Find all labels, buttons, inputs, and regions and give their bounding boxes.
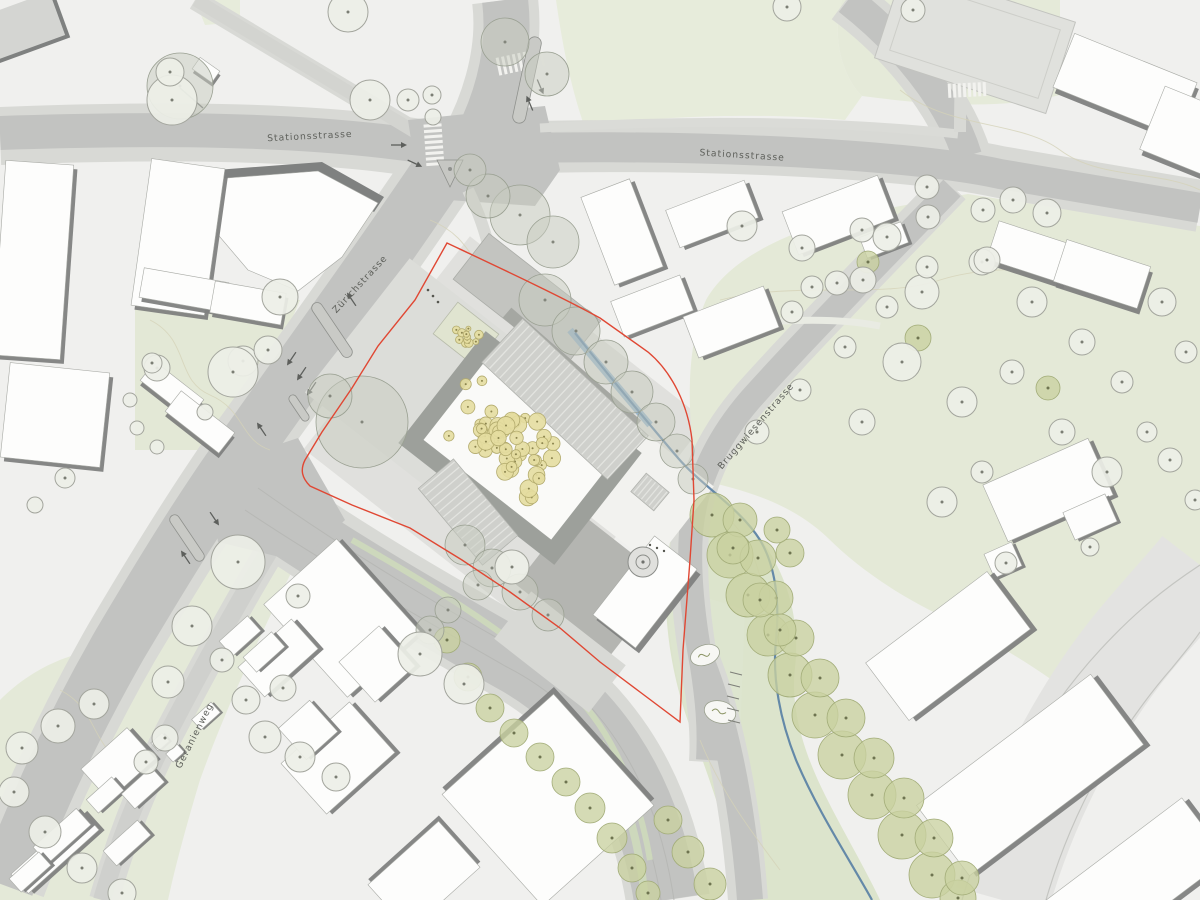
- lawn-top-center: [556, 0, 862, 128]
- site-plan-map: Stationsstrasse Stationsstrasse Zürichst…: [0, 0, 1200, 900]
- site-plan-page: Stationsstrasse Stationsstrasse Zürichst…: [0, 0, 1200, 900]
